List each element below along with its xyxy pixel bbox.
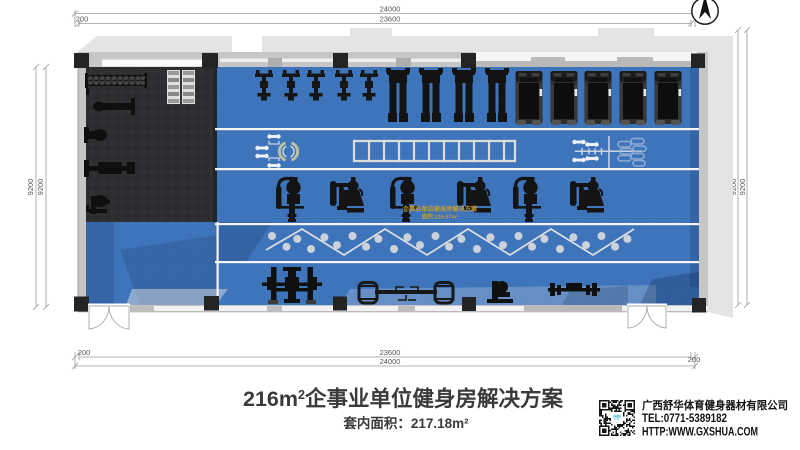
svg-text:企事业单位健身房解决方案: 企事业单位健身房解决方案 bbox=[402, 205, 478, 213]
svg-text:9200: 9200 bbox=[26, 179, 35, 196]
svg-text:9200: 9200 bbox=[738, 179, 747, 196]
svg-text:TEL:0771-5389182: TEL:0771-5389182 bbox=[642, 411, 727, 425]
svg-text:套内面积：217.18m²: 套内面积：217.18m² bbox=[343, 415, 469, 431]
svg-text:216m2企事业单位健身房解决方案: 216m2企事业单位健身房解决方案 bbox=[243, 386, 563, 411]
svg-text:24000: 24000 bbox=[380, 357, 401, 366]
svg-text:23600: 23600 bbox=[380, 348, 401, 357]
svg-text:广西舒华体育健身器材有限公司: 广西舒华体育健身器材有限公司 bbox=[642, 398, 788, 412]
svg-text:24000: 24000 bbox=[380, 5, 401, 14]
svg-text:23600: 23600 bbox=[380, 15, 401, 24]
svg-text:200: 200 bbox=[78, 348, 91, 357]
svg-text:面积:216.57m²: 面积:216.57m² bbox=[422, 213, 459, 221]
svg-text:200: 200 bbox=[76, 15, 89, 24]
svg-text:200: 200 bbox=[688, 355, 701, 364]
svg-text:9200: 9200 bbox=[36, 179, 45, 196]
svg-text:HTTP:WWW.GXSHUA.COM: HTTP:WWW.GXSHUA.COM bbox=[642, 427, 758, 439]
